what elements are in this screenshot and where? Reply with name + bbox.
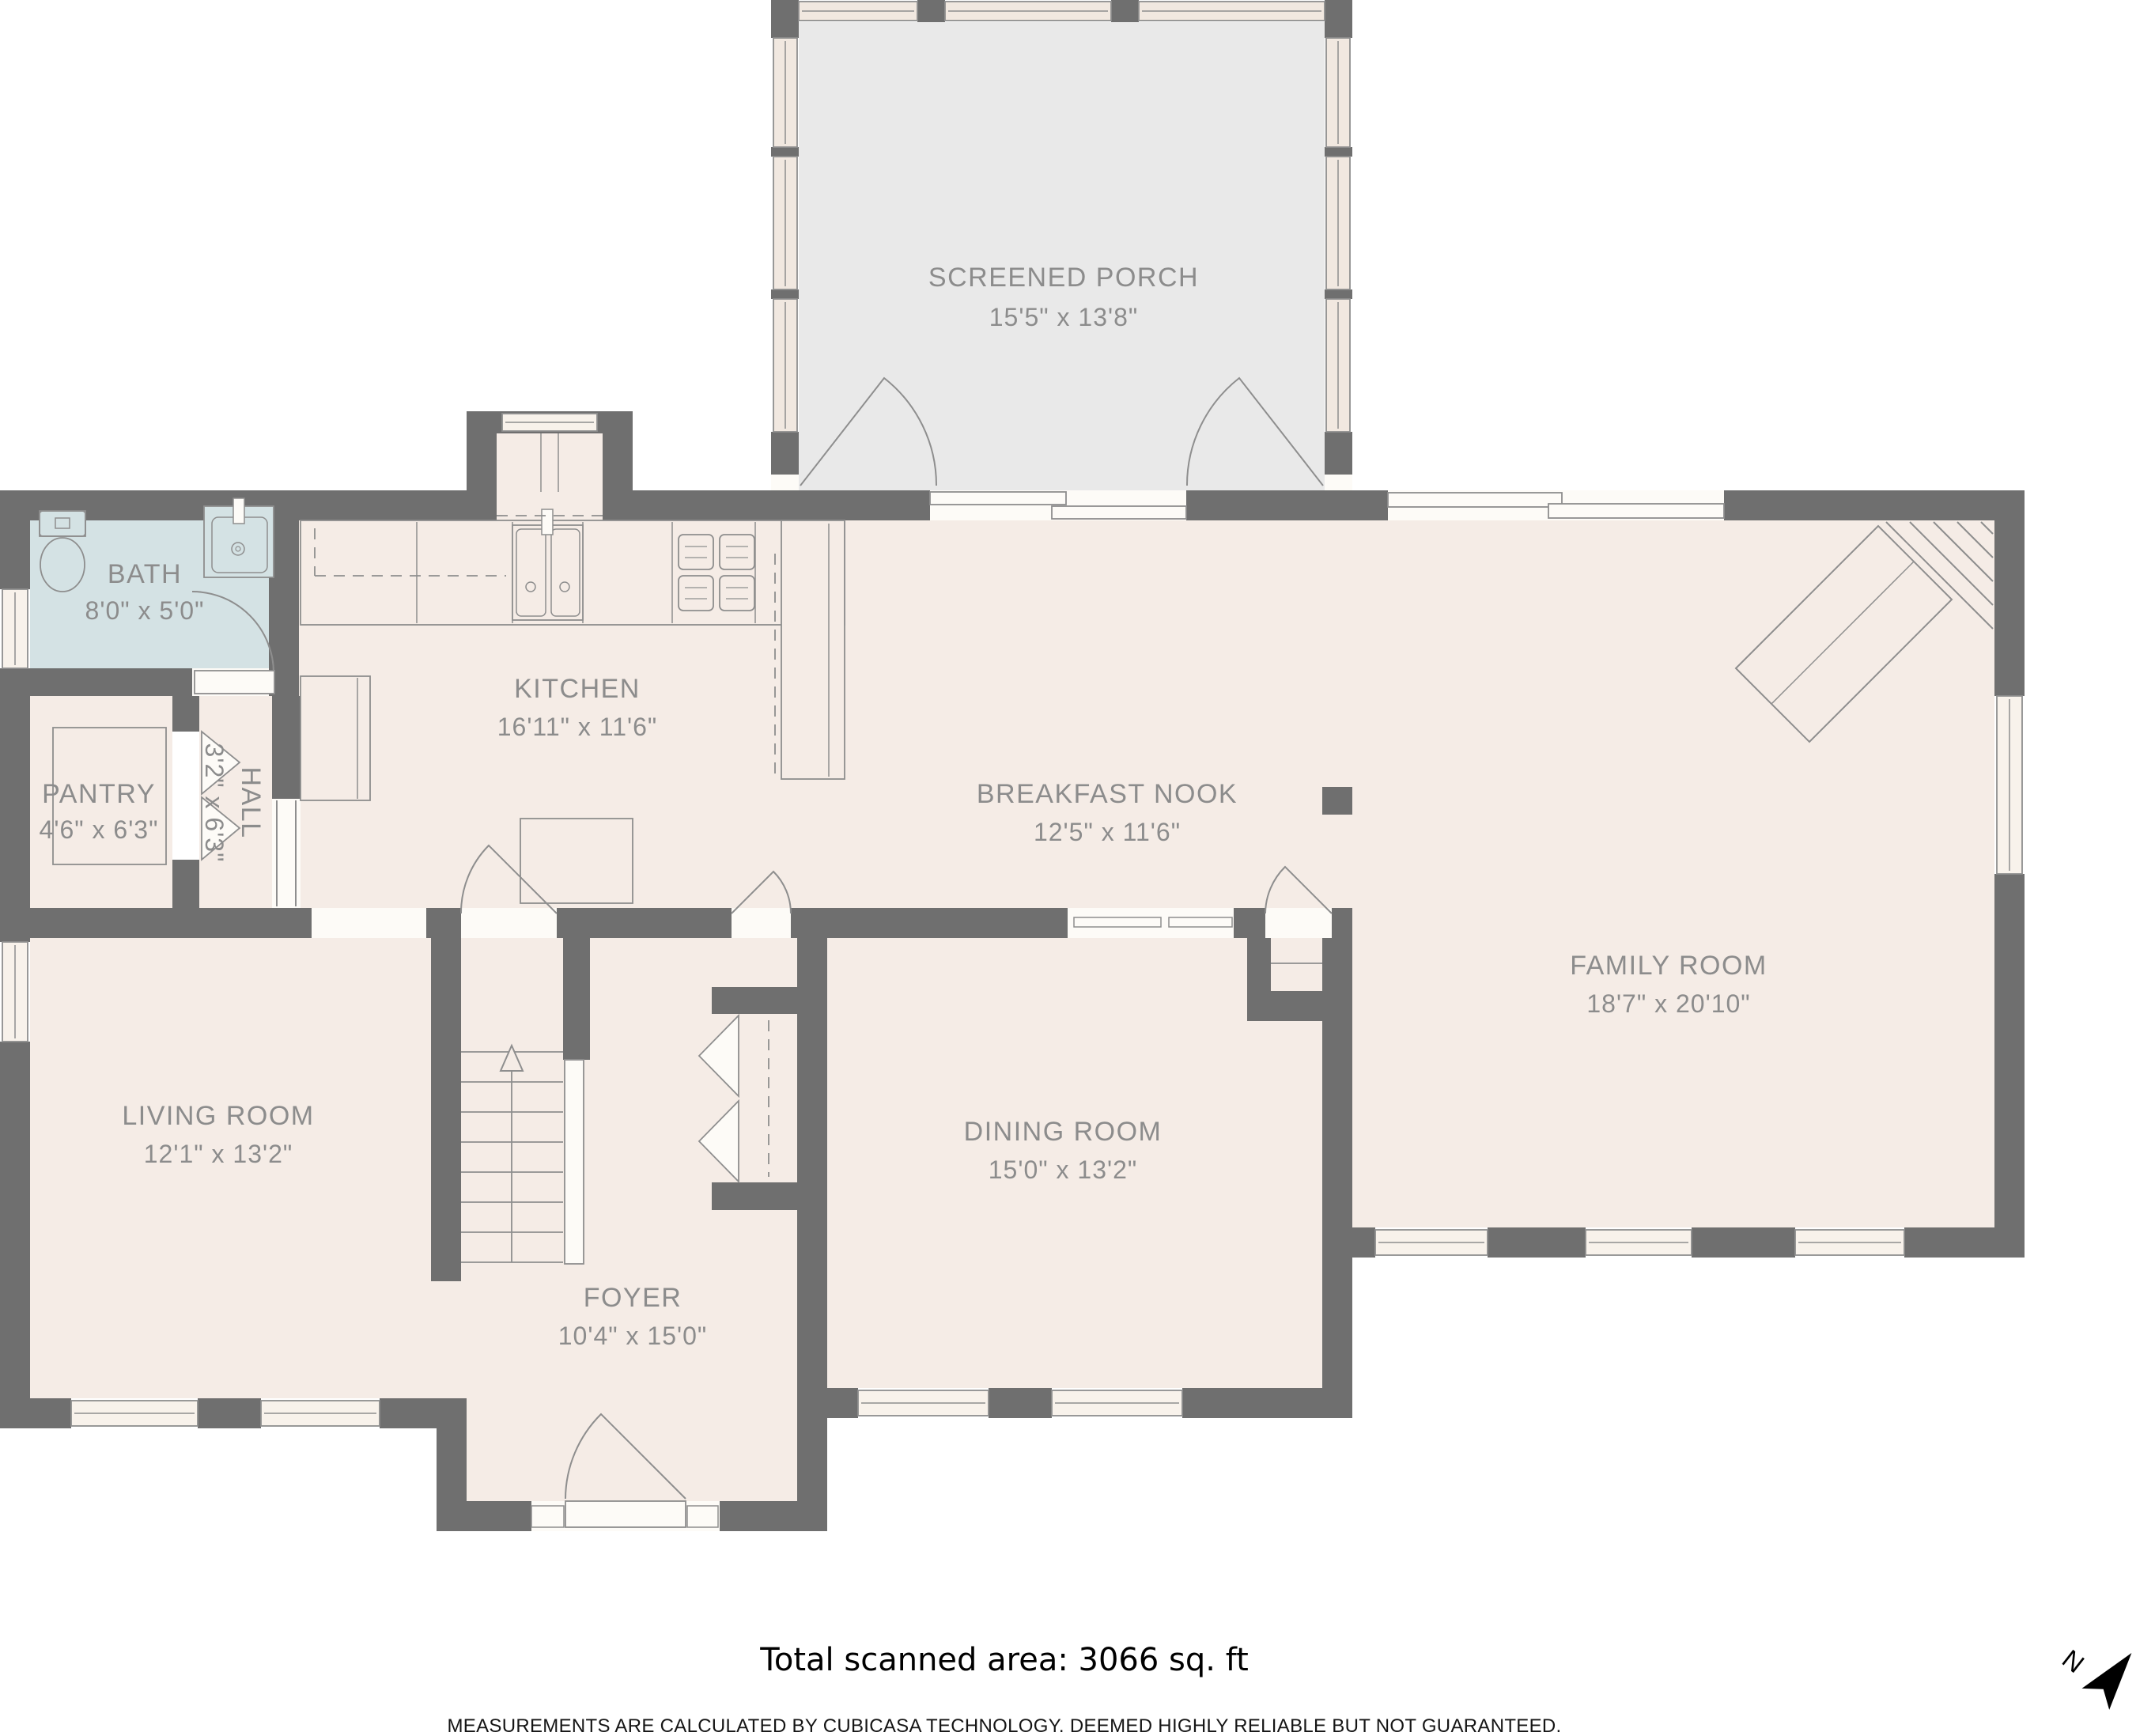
wall-segment bbox=[1182, 1388, 1352, 1418]
total-area-text: Total scanned area: 3066 sq. ft bbox=[759, 1642, 1249, 1678]
wall-segment bbox=[1322, 1227, 1375, 1258]
stairs-rail bbox=[565, 1060, 584, 1264]
room-dims-breakfast-nook: 12'5" x 11'6" bbox=[1034, 818, 1181, 846]
wall-opening bbox=[732, 908, 791, 938]
toilet-button bbox=[55, 518, 70, 528]
wall-segment bbox=[603, 490, 930, 520]
room-dims-kitchen: 16'11" x 11'6" bbox=[497, 713, 658, 741]
door-leaf bbox=[195, 671, 274, 694]
wall-segment bbox=[172, 696, 199, 732]
room-dims-bath: 8'0" x 5'0" bbox=[85, 596, 205, 625]
room-dims-living-room: 12'1" x 13'2" bbox=[144, 1140, 293, 1168]
room-label-breakfast-nook: BREAKFAST NOOK bbox=[977, 779, 1238, 809]
wall-segment bbox=[771, 432, 799, 475]
sliding-door bbox=[930, 492, 1066, 505]
room-dims-hall: 3'2" x 6'3" bbox=[200, 743, 229, 863]
wall-segment bbox=[917, 0, 945, 22]
wall-segment bbox=[0, 668, 192, 696]
room-label-hall: HALL bbox=[236, 766, 266, 838]
cased-opening-bar bbox=[1074, 917, 1161, 927]
sliding-door bbox=[1388, 493, 1562, 507]
wall-opening bbox=[1265, 908, 1332, 938]
wall-segment bbox=[712, 987, 797, 1014]
wall-segment bbox=[1692, 1227, 1795, 1258]
peninsula-counter bbox=[781, 520, 845, 779]
room-label-kitchen: KITCHEN bbox=[514, 674, 641, 704]
floor-living bbox=[30, 938, 431, 1398]
refrigerator bbox=[301, 676, 370, 800]
wall-segment bbox=[771, 22, 799, 38]
wall-opening bbox=[312, 908, 426, 938]
room-label-screened-porch: SCREENED PORCH bbox=[928, 263, 1199, 293]
room-label-family-room: FAMILY ROOM bbox=[1570, 951, 1767, 981]
wall-segment bbox=[1325, 432, 1352, 475]
wall-segment bbox=[380, 1398, 467, 1428]
footer: Total scanned area: 3066 sq. ft MEASUREM… bbox=[448, 1642, 1562, 1736]
wall-segment bbox=[1325, 22, 1352, 38]
wall-segment bbox=[431, 938, 461, 1281]
kitchen-island bbox=[520, 819, 633, 903]
wall-opening bbox=[461, 908, 557, 938]
wall-segment bbox=[437, 1501, 531, 1531]
wall-opening bbox=[771, 475, 799, 490]
north-arrow-icon: N bbox=[2057, 1643, 2146, 1710]
wall-segment bbox=[0, 668, 30, 942]
plan-structure bbox=[0, 0, 2025, 1531]
floor-nook-family-gap bbox=[1322, 520, 1352, 908]
wall-opening bbox=[1325, 475, 1352, 490]
wall-segment bbox=[791, 908, 1068, 938]
wall-segment bbox=[720, 1501, 827, 1531]
wall-segment bbox=[1904, 1227, 2025, 1258]
front-door-leaf bbox=[565, 1501, 686, 1527]
wall-segment bbox=[771, 147, 799, 157]
sink-icon bbox=[512, 525, 583, 620]
wall-segment bbox=[1322, 938, 1352, 1227]
wall-segment bbox=[1186, 490, 1388, 520]
wall-segment bbox=[1332, 908, 1352, 938]
floor-bump-out bbox=[497, 433, 603, 520]
wall-segment bbox=[272, 696, 301, 799]
sliding-door bbox=[1052, 506, 1186, 519]
sidelight bbox=[687, 1506, 718, 1527]
wall-segment bbox=[1322, 787, 1352, 815]
toilet-bowl bbox=[40, 538, 85, 592]
room-label-foyer: FOYER bbox=[584, 1283, 682, 1313]
wall-segment bbox=[0, 490, 30, 589]
room-dims-dining-room: 15'0" x 13'2" bbox=[989, 1155, 1138, 1184]
wall-segment bbox=[198, 1398, 261, 1428]
cased-opening-bar bbox=[1169, 917, 1232, 927]
room-label-bath: BATH bbox=[108, 559, 182, 589]
room-label-pantry: PANTRY bbox=[42, 779, 156, 809]
sidelight bbox=[531, 1506, 564, 1527]
wall-segment bbox=[0, 908, 312, 938]
floor-entry bbox=[467, 1428, 797, 1501]
room-label-dining-room: DINING ROOM bbox=[964, 1117, 1163, 1147]
floor-porch bbox=[799, 22, 1325, 490]
floor-plan: SCREENED PORCH 15'5" x 13'8" BATH 8'0" x… bbox=[0, 0, 2155, 1736]
wall-segment bbox=[712, 1182, 797, 1210]
sliding-door bbox=[1548, 504, 1724, 518]
room-dims-family-room: 18'7" x 20'10" bbox=[1586, 989, 1750, 1018]
wall-segment bbox=[0, 1398, 71, 1428]
wall-segment bbox=[1724, 490, 2025, 520]
north-label: N bbox=[2057, 1643, 2090, 1678]
wall-segment bbox=[1488, 1227, 1586, 1258]
wall-segment bbox=[989, 1388, 1052, 1418]
room-dims-screened-porch: 15'5" x 13'8" bbox=[989, 303, 1139, 331]
wall-segment bbox=[797, 1388, 858, 1418]
wall-segment bbox=[1247, 991, 1352, 1021]
room-label-living-room: LIVING ROOM bbox=[122, 1101, 314, 1131]
wall-segment bbox=[172, 860, 199, 908]
wall-segment bbox=[1994, 490, 2025, 696]
wall-segment bbox=[0, 1042, 30, 1428]
wall-segment bbox=[1325, 147, 1352, 157]
wall-segment bbox=[771, 0, 799, 22]
room-dims-foyer: 10'4" x 15'0" bbox=[558, 1322, 708, 1350]
disclaimer-text: MEASUREMENTS ARE CALCULATED BY CUBICASA … bbox=[448, 1715, 1562, 1736]
wall-segment bbox=[426, 908, 461, 938]
room-dims-pantry: 4'6" x 6'3" bbox=[40, 815, 159, 844]
faucet-icon bbox=[542, 509, 553, 535]
wall-segment bbox=[1994, 874, 2025, 1258]
wall-segment bbox=[1247, 938, 1271, 991]
wall-segment bbox=[1325, 0, 1352, 22]
faucet-icon bbox=[233, 498, 244, 524]
wall-segment bbox=[1234, 908, 1265, 938]
wall-segment bbox=[277, 668, 299, 696]
wall-segment bbox=[1322, 1258, 1352, 1388]
wall-segment bbox=[1325, 289, 1352, 299]
wall-segment bbox=[557, 908, 732, 938]
wall-segment bbox=[797, 938, 827, 1398]
wall-segment bbox=[771, 289, 799, 299]
wall-segment bbox=[563, 938, 590, 1060]
wall-segment bbox=[1111, 0, 1139, 22]
